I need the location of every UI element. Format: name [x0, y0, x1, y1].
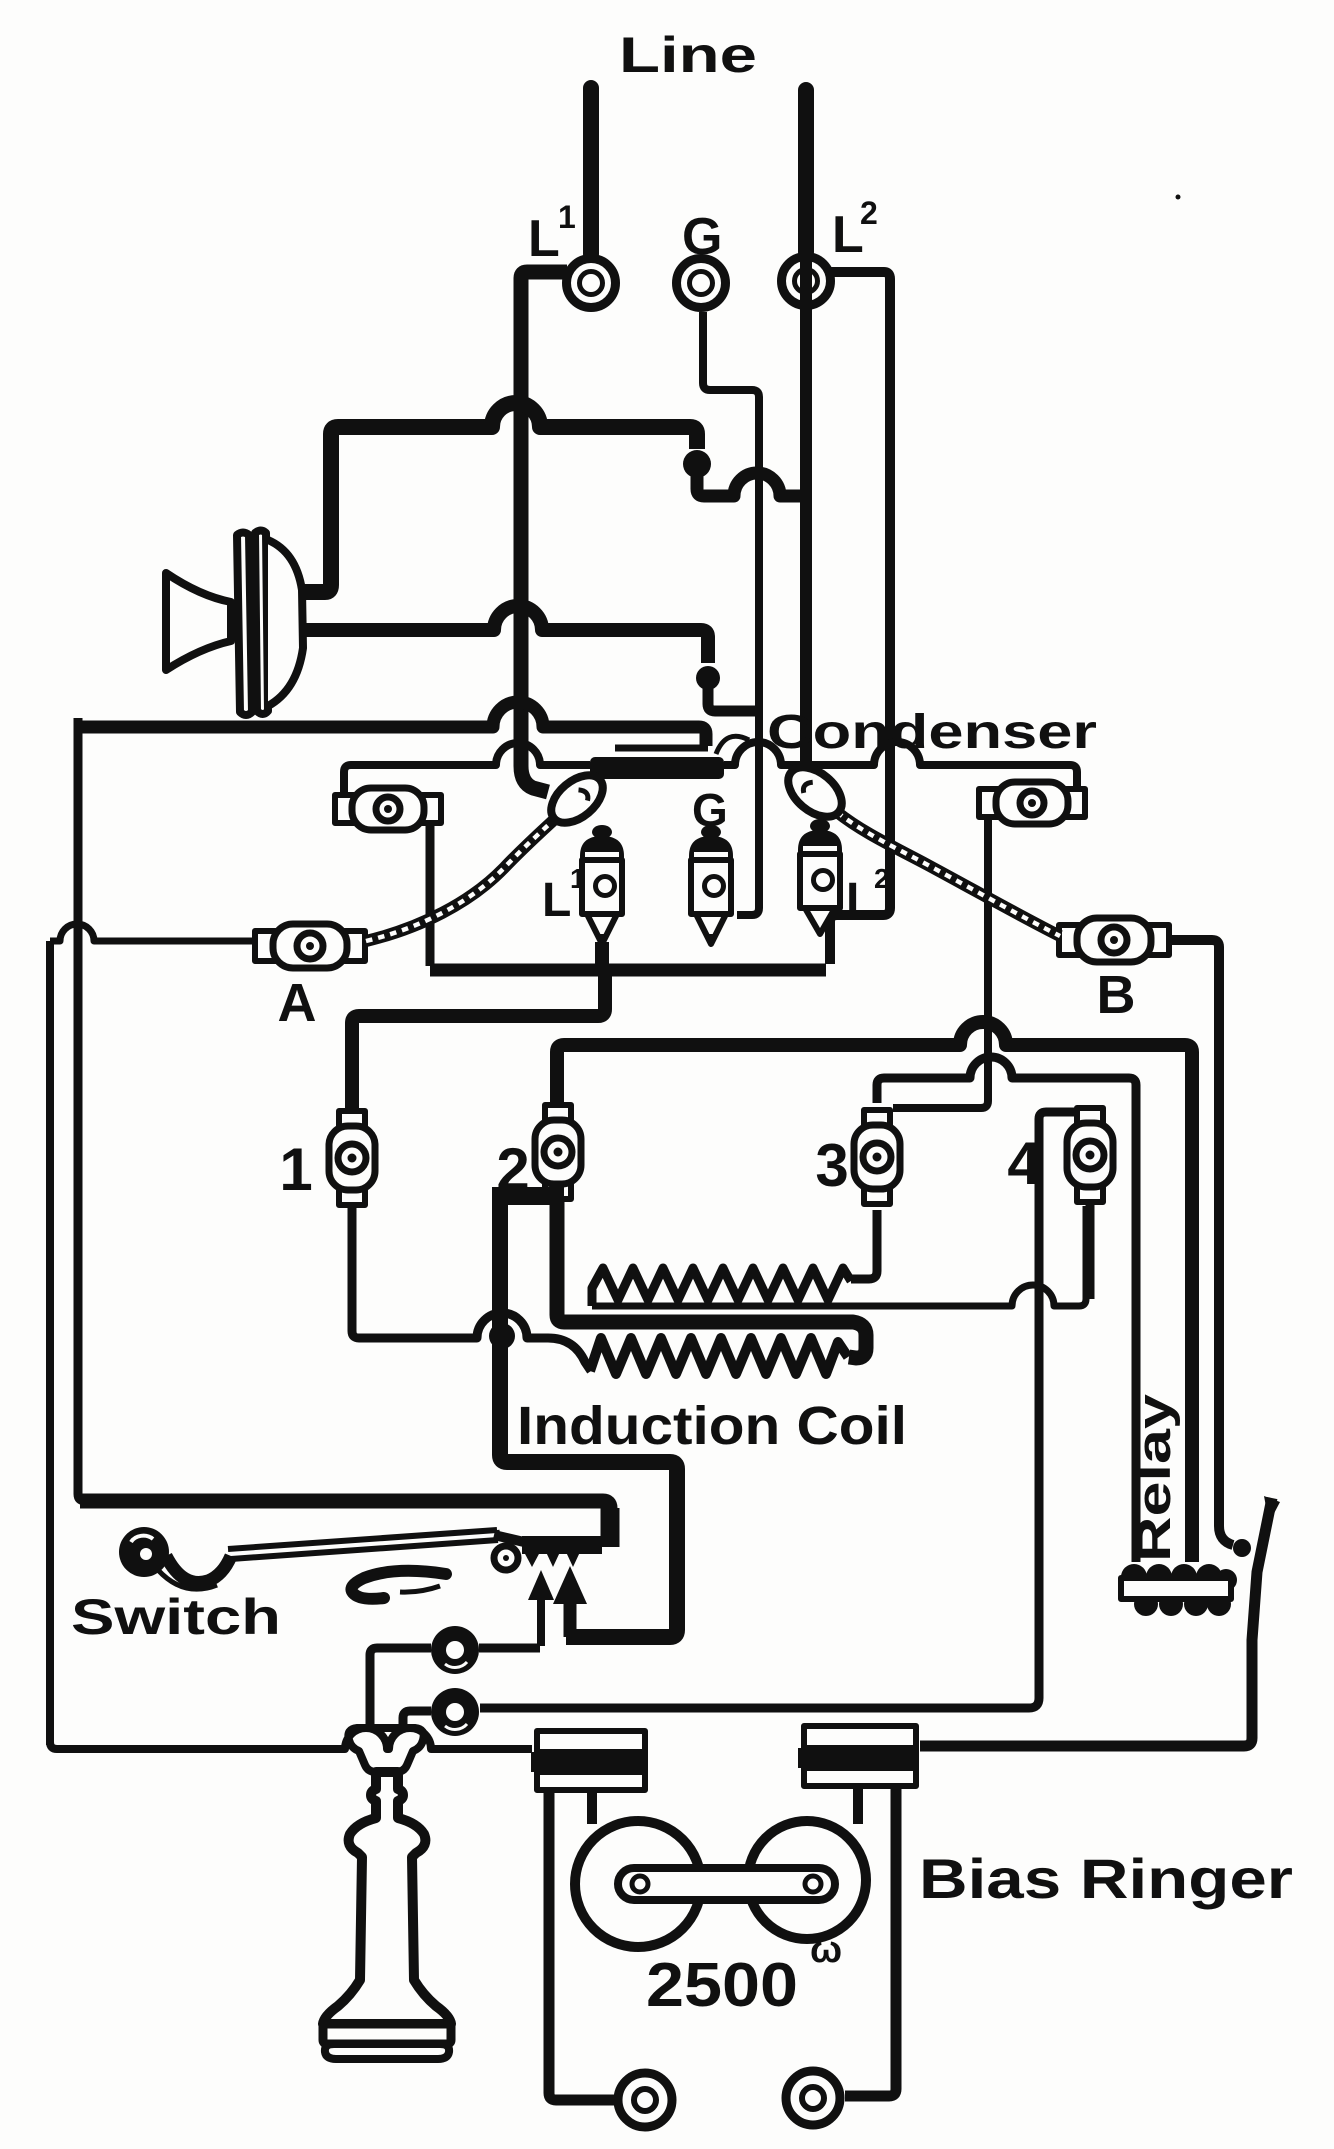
svg-text:Relay: Relay: [1127, 1394, 1180, 1562]
svg-text:Switch: Switch: [71, 1589, 281, 1645]
svg-text:2500: 2500: [646, 1951, 798, 2020]
svg-text:3: 3: [815, 1132, 848, 1199]
svg-text:L: L: [528, 210, 560, 268]
svg-text:1: 1: [570, 863, 586, 894]
svg-text:A: A: [278, 973, 317, 1033]
svg-text:G: G: [692, 784, 728, 836]
svg-text:Induction Coil: Induction Coil: [517, 1396, 907, 1456]
svg-text:Condenser: Condenser: [767, 706, 1097, 759]
svg-text:2: 2: [874, 863, 890, 894]
svg-text:L: L: [832, 206, 864, 264]
svg-text:G: G: [682, 208, 722, 266]
svg-text:1: 1: [558, 199, 576, 235]
svg-text:1: 1: [279, 1136, 312, 1203]
svg-text:Bias Ringer: Bias Ringer: [919, 1847, 1293, 1910]
svg-text:L: L: [846, 874, 875, 927]
svg-text:L: L: [542, 874, 571, 927]
svg-text:Line: Line: [619, 27, 757, 83]
svg-text:B: B: [1097, 965, 1136, 1025]
svg-text:2: 2: [860, 195, 878, 231]
svg-text:ω: ω: [810, 1929, 842, 1971]
